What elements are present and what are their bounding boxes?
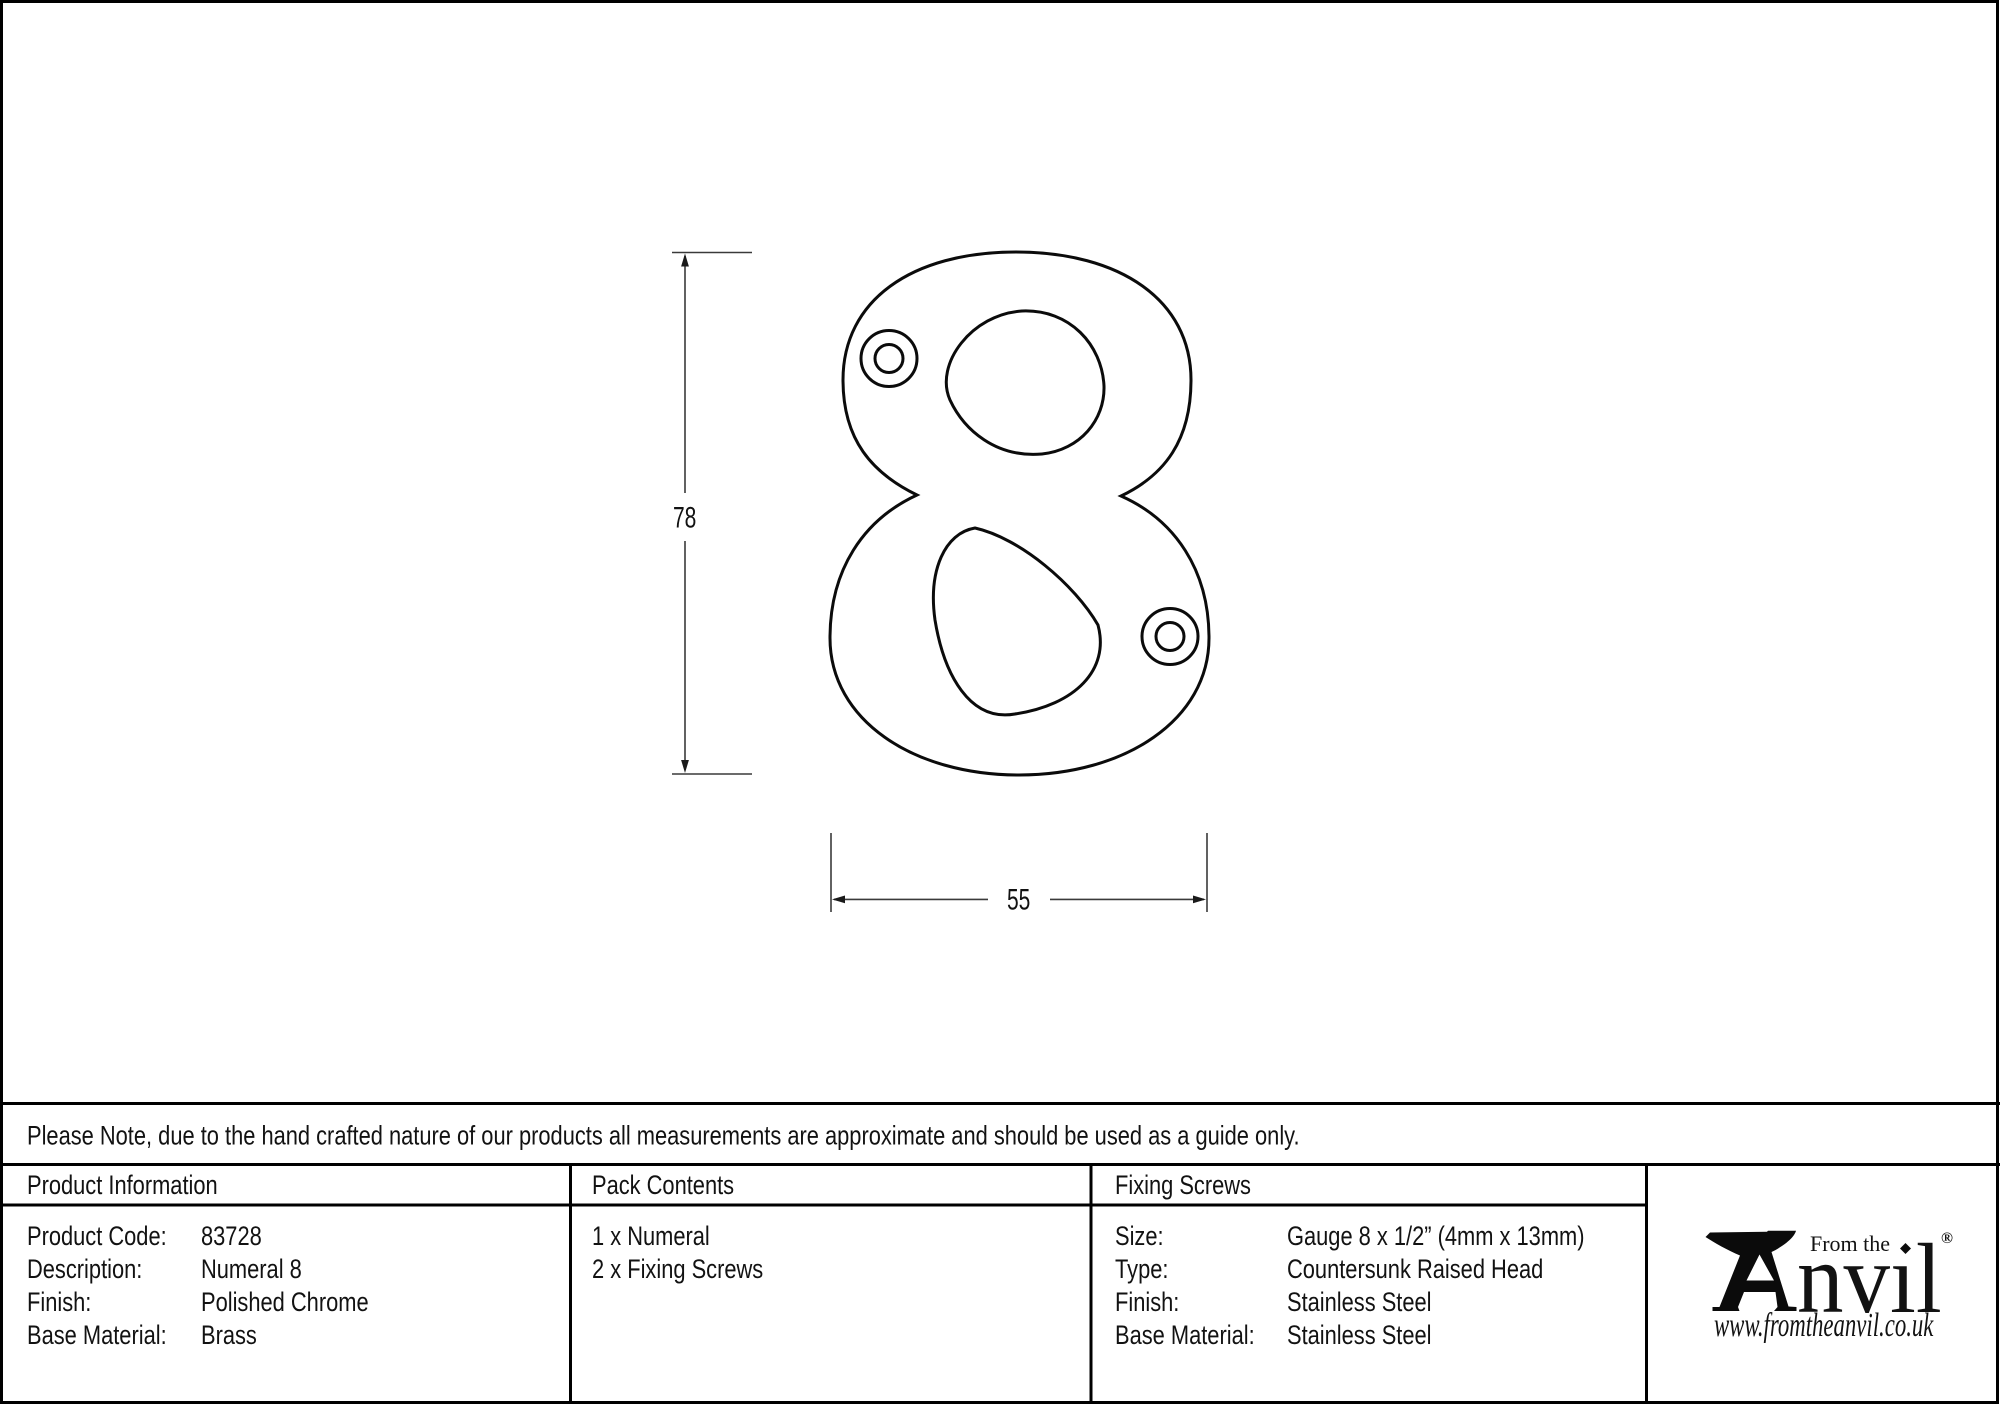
svg-text:Fixing Screws: Fixing Screws xyxy=(1115,1171,1251,1201)
svg-text:Base Material:: Base Material: xyxy=(1115,1321,1255,1351)
svg-text:Base Material:: Base Material: xyxy=(27,1321,167,1351)
svg-text:Gauge 8 x 1/2” (4mm x 13mm): Gauge 8 x 1/2” (4mm x 13mm) xyxy=(1287,1222,1585,1252)
svg-text:Size:: Size: xyxy=(1115,1222,1164,1252)
svg-text:55: 55 xyxy=(1007,884,1030,916)
svg-text:From the: From the xyxy=(1810,1231,1890,1256)
svg-text:Product Information: Product Information xyxy=(27,1171,218,1201)
svg-text:Stainless Steel: Stainless Steel xyxy=(1287,1288,1432,1318)
svg-text:Polished Chrome: Polished Chrome xyxy=(201,1288,369,1318)
svg-text:Pack Contents: Pack Contents xyxy=(592,1171,734,1201)
svg-text:Finish:: Finish: xyxy=(27,1288,91,1318)
svg-text:Product Code:: Product Code: xyxy=(27,1222,167,1252)
svg-text:Stainless Steel: Stainless Steel xyxy=(1287,1321,1432,1351)
svg-text:Countersunk Raised Head: Countersunk Raised Head xyxy=(1287,1255,1543,1285)
svg-text:®: ® xyxy=(1941,1230,1953,1247)
svg-text:www.fromtheanvil.co.uk: www.fromtheanvil.co.uk xyxy=(1714,1307,1934,1345)
svg-text:Finish:: Finish: xyxy=(1115,1288,1179,1318)
svg-text:Numeral 8: Numeral 8 xyxy=(201,1255,302,1285)
svg-text:Description:: Description: xyxy=(27,1255,142,1285)
svg-text:83728: 83728 xyxy=(201,1222,262,1252)
svg-text:Type:: Type: xyxy=(1115,1255,1168,1285)
svg-text:2 x Fixing Screws: 2 x Fixing Screws xyxy=(592,1255,763,1285)
svg-text:1 x Numeral: 1 x Numeral xyxy=(592,1222,710,1252)
svg-text:Brass: Brass xyxy=(201,1321,257,1351)
svg-text:Please Note, due to the hand c: Please Note, due to the hand crafted nat… xyxy=(27,1121,1300,1151)
svg-text:78: 78 xyxy=(673,502,696,534)
